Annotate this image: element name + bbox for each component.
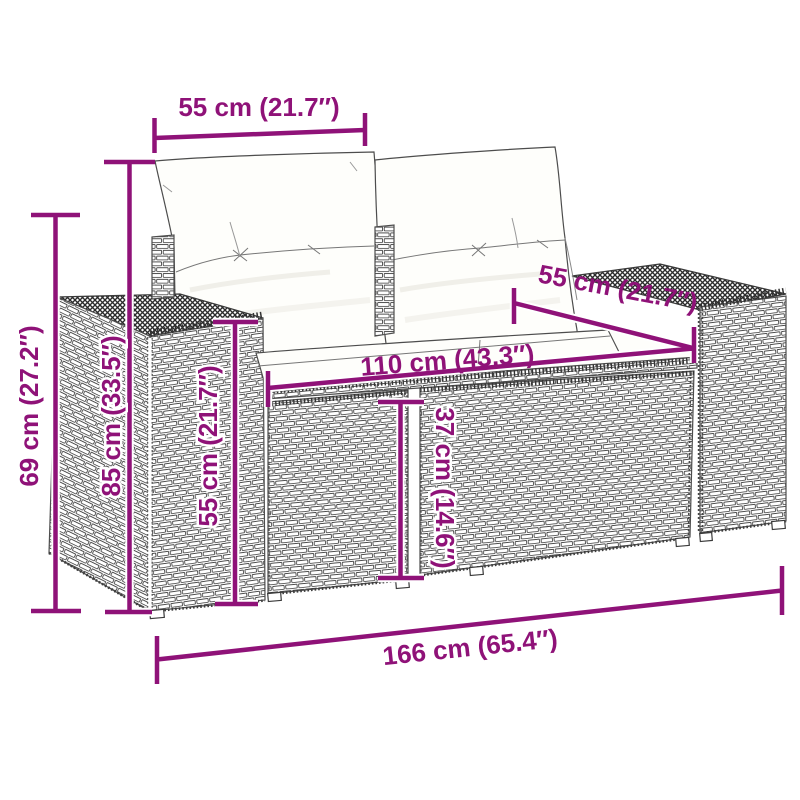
svg-text:85 cm (33.5″): 85 cm (33.5″) [96,335,126,496]
svg-text:37 cm (14.6″): 37 cm (14.6″) [430,407,460,568]
svg-text:55 cm (21.7″): 55 cm (21.7″) [193,365,223,526]
svg-text:69 cm (27.2″): 69 cm (27.2″) [14,325,44,486]
svg-text:55 cm (21.7″): 55 cm (21.7″) [178,92,339,122]
